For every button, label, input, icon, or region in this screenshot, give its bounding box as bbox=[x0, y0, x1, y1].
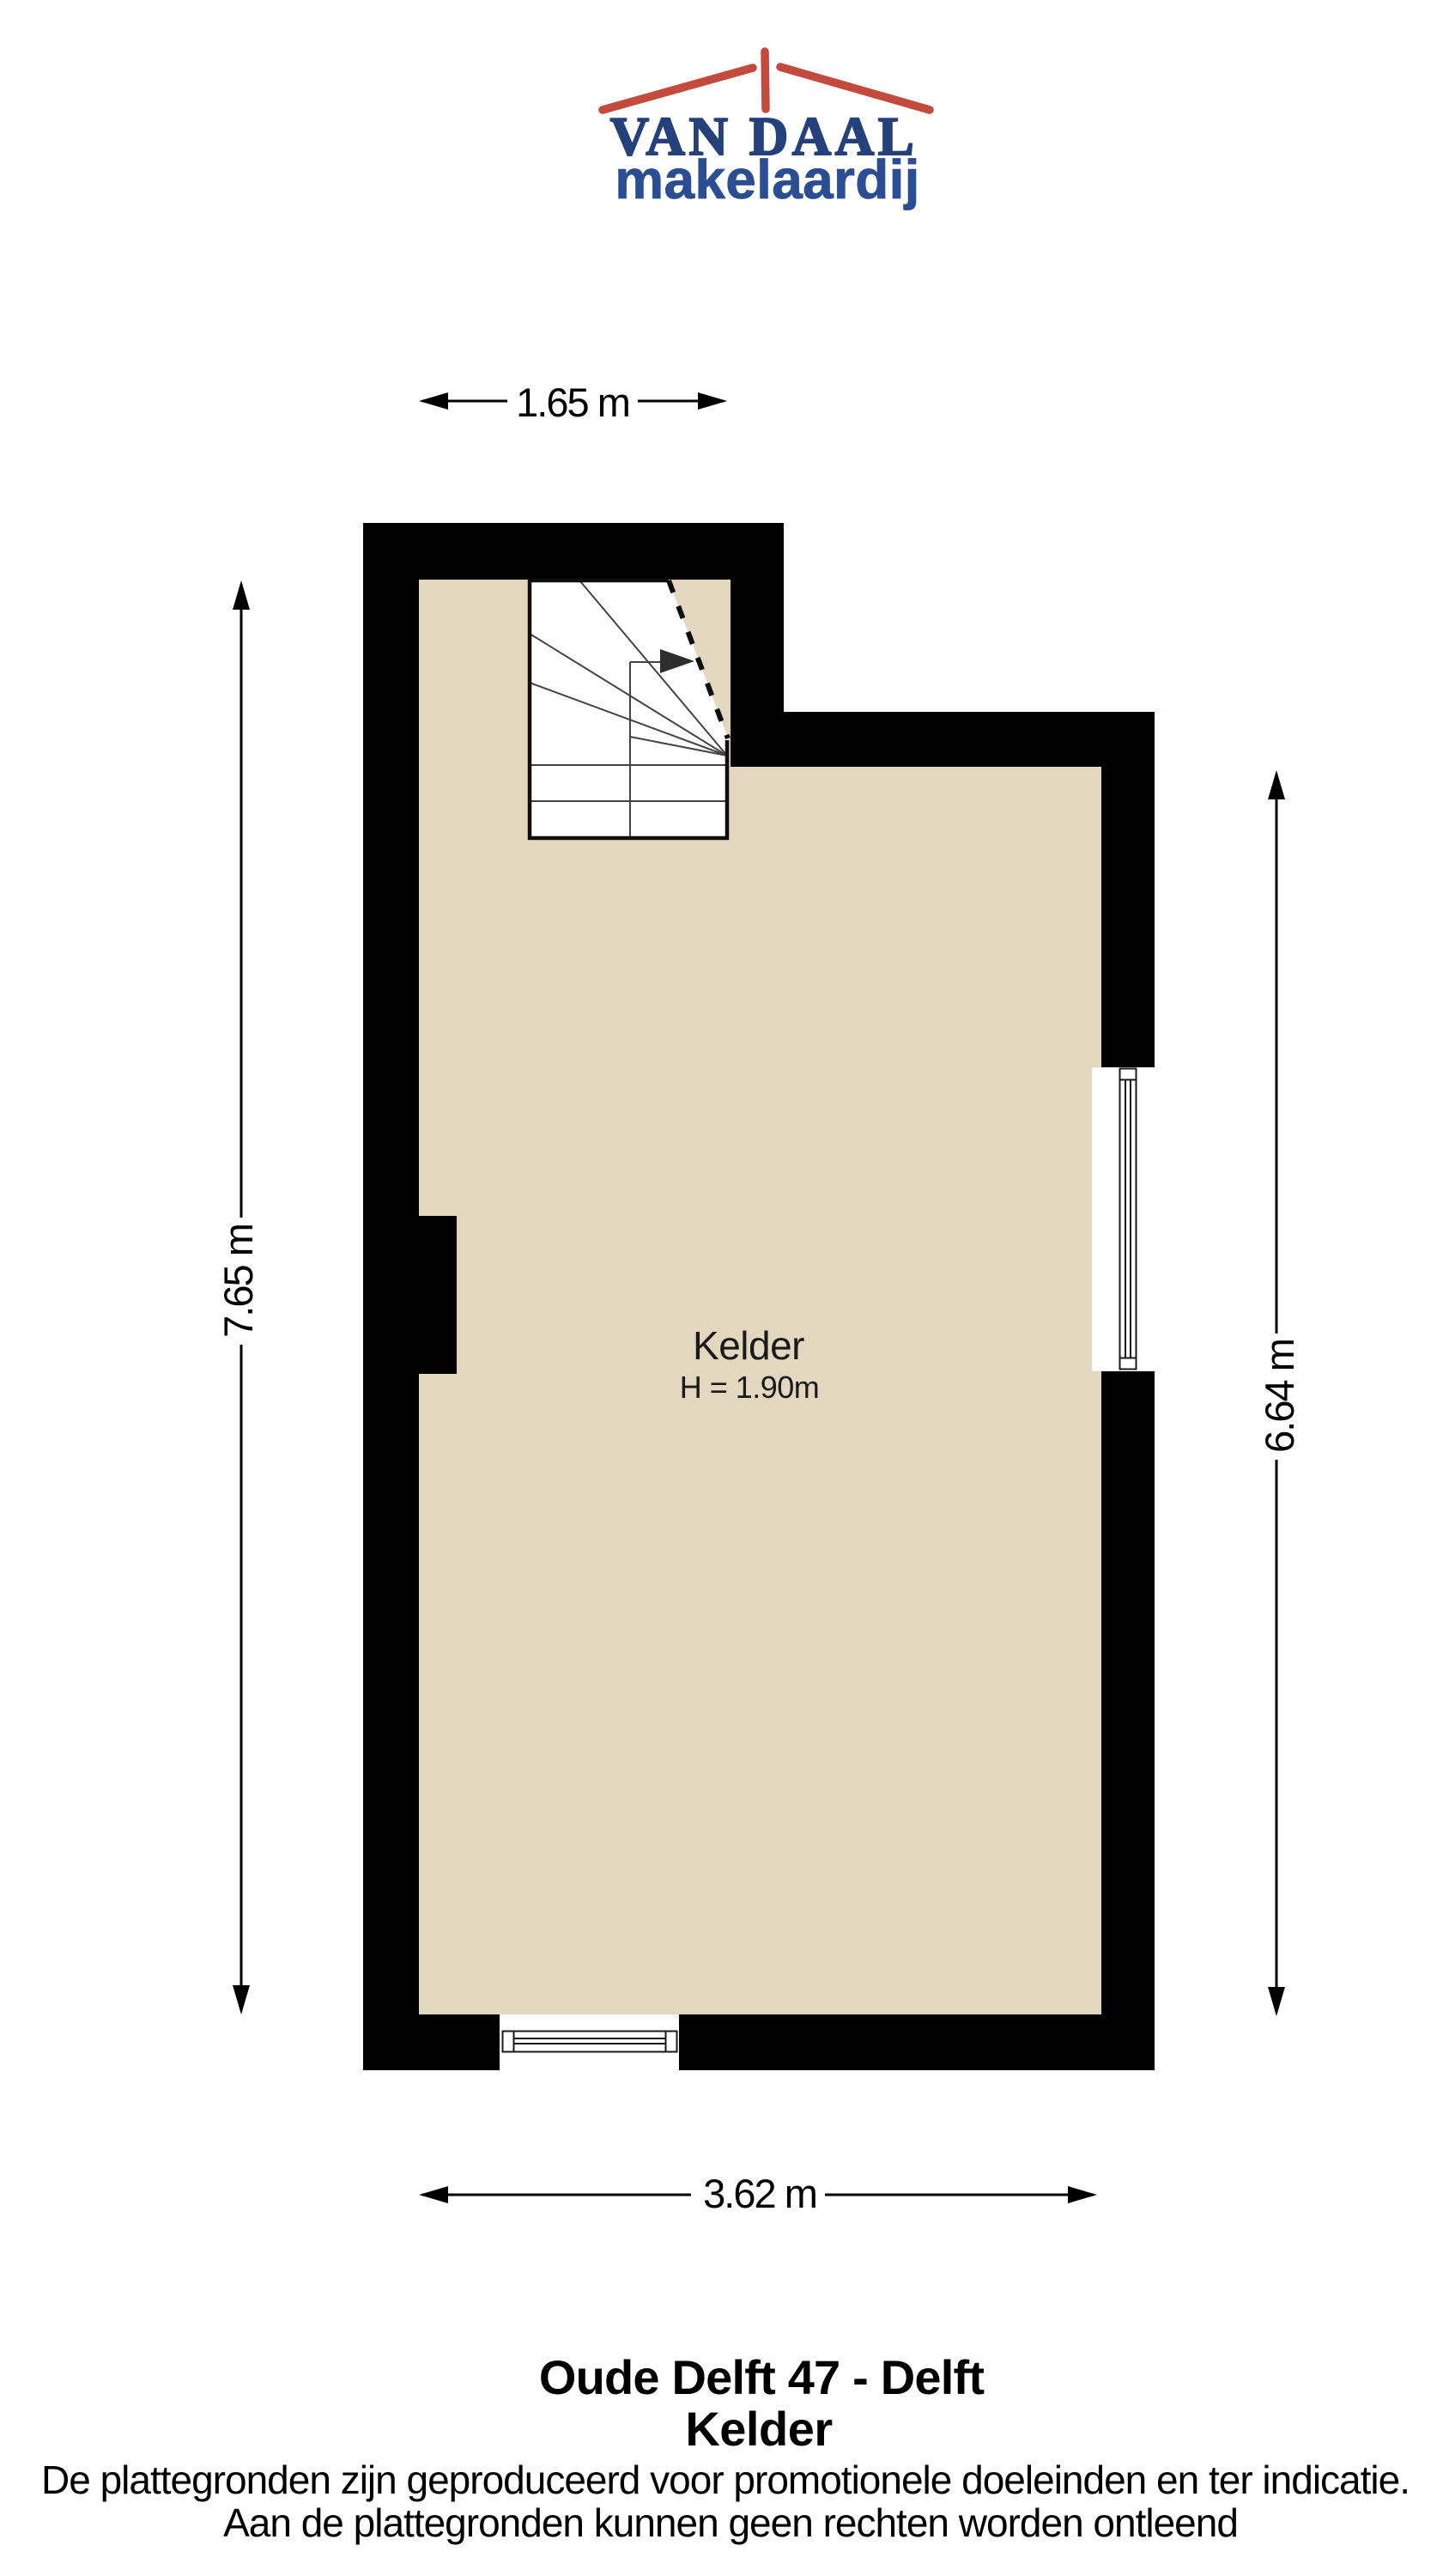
svg-text:1.65 m: 1.65 m bbox=[516, 380, 629, 425]
svg-text:H = 1.90m: H = 1.90m bbox=[680, 1370, 820, 1405]
svg-text:6.64 m: 6.64 m bbox=[1257, 1340, 1302, 1453]
svg-text:Kelder: Kelder bbox=[693, 1323, 804, 1368]
svg-text:De plattegronden zijn geproduc: De plattegronden zijn geproduceerd voor … bbox=[41, 2458, 1410, 2502]
svg-text:7.65 m: 7.65 m bbox=[215, 1224, 261, 1338]
svg-text:makelaardij: makelaardij bbox=[615, 149, 920, 210]
svg-text:Kelder: Kelder bbox=[685, 2402, 832, 2456]
svg-text:Aan de plattegronden kunnen ge: Aan de plattegronden kunnen geen rechten… bbox=[223, 2500, 1238, 2545]
svg-text:3.62 m: 3.62 m bbox=[703, 2171, 816, 2216]
svg-text:Oude Delft 47 - Delft: Oude Delft 47 - Delft bbox=[539, 2350, 985, 2404]
